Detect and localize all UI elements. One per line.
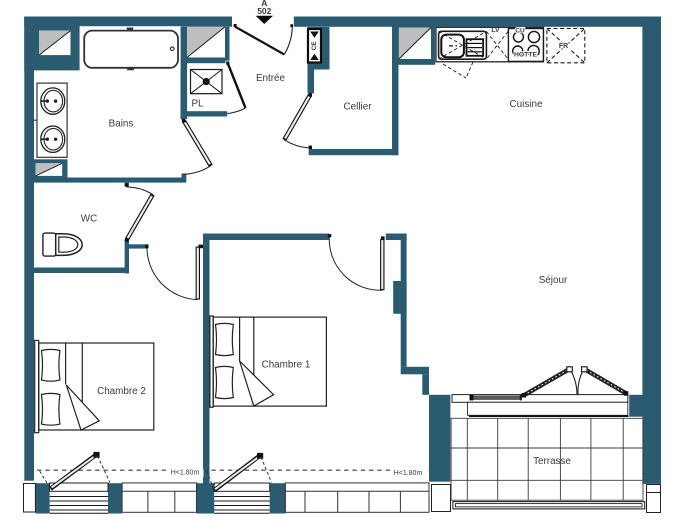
svg-text:CE: CE	[311, 41, 318, 51]
svg-text:Terrasse: Terrasse	[533, 456, 571, 467]
svg-text:Bains: Bains	[109, 119, 134, 130]
svg-text:Chambre 2: Chambre 2	[97, 386, 146, 397]
svg-text:LV: LV	[491, 27, 500, 34]
svg-text:CU: CU	[515, 28, 525, 35]
svg-text:WC: WC	[81, 214, 97, 225]
svg-text:Cuisine: Cuisine	[510, 99, 543, 110]
svg-text:Séjour: Séjour	[539, 275, 568, 286]
svg-text:H<1.80m: H<1.80m	[394, 470, 423, 477]
svg-text:Entrée: Entrée	[256, 73, 286, 84]
svg-text:HOTTE: HOTTE	[514, 51, 537, 58]
svg-text:502: 502	[257, 6, 271, 16]
svg-text:H<1.80m: H<1.80m	[171, 470, 200, 477]
svg-text:PL: PL	[191, 99, 204, 110]
svg-text:FR: FR	[559, 43, 568, 50]
svg-text:Chambre 1: Chambre 1	[262, 360, 311, 371]
svg-text:Cellier: Cellier	[344, 102, 373, 113]
